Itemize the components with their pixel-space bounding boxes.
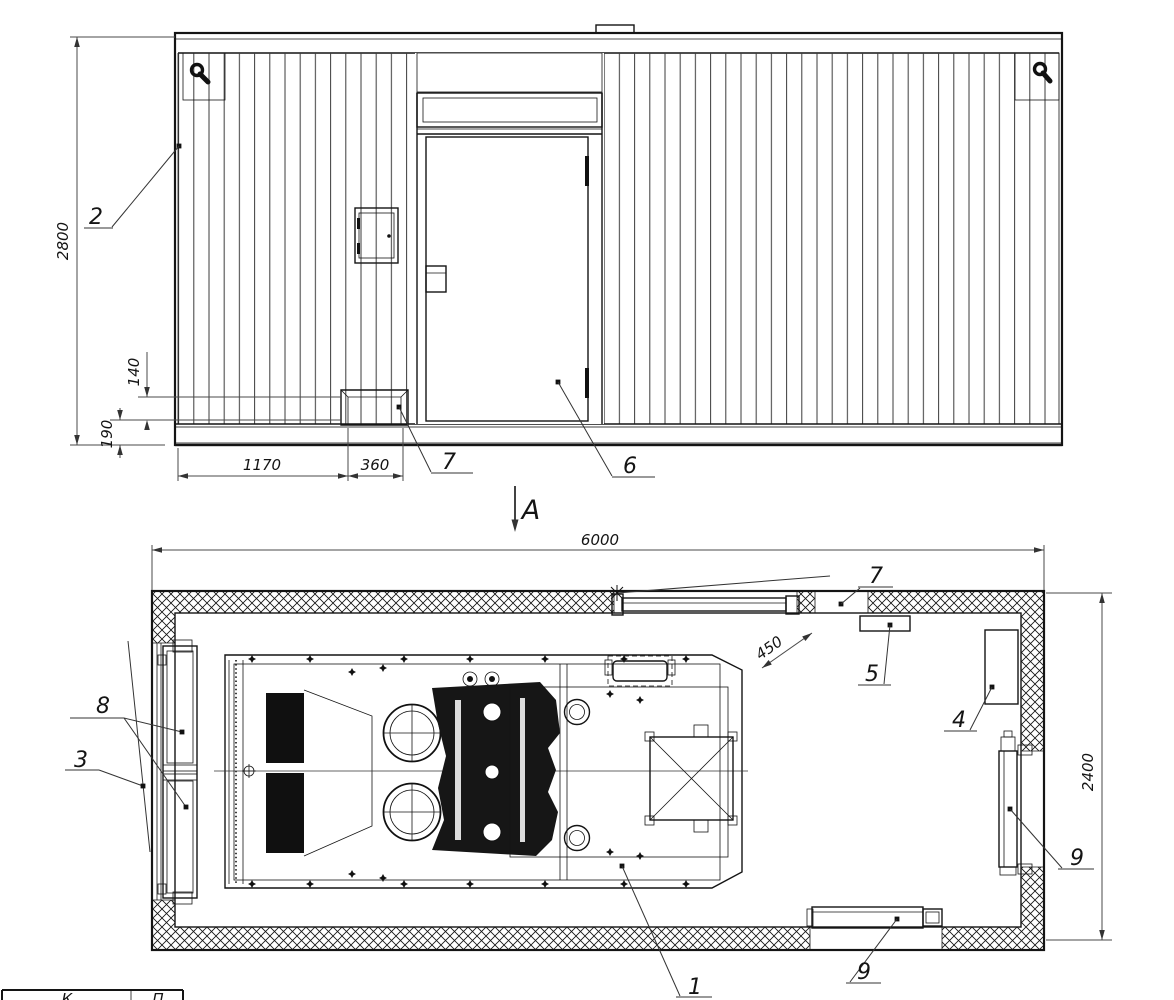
louver-assembly (128, 640, 197, 904)
air-filter-lower (383, 783, 441, 841)
door-hinge-bottom (585, 368, 589, 398)
section-marker-A: А (512, 486, 541, 532)
dim-2400: 2400 (1079, 753, 1097, 791)
radiator-core-upper (266, 693, 304, 763)
container-drawing: 2800 140 190 1170 360 (0, 0, 1174, 1000)
callout-7-elevation: 7 (442, 450, 456, 475)
air-filter-upper (383, 704, 441, 762)
elevation-view: 2800 140 190 1170 360 (54, 25, 1062, 481)
silencer (605, 656, 675, 686)
roof-vent (596, 25, 634, 33)
dim-140: 140 (125, 358, 143, 387)
callout-8: 8 (96, 694, 110, 719)
genset-skid (214, 655, 748, 888)
plan-walls (152, 591, 1044, 950)
wall-siding (178, 53, 1059, 424)
radiator-core-lower (266, 773, 304, 853)
callout-4: 4 (952, 708, 966, 733)
control-box[interactable] (860, 616, 910, 631)
wall-cabinet[interactable] (985, 630, 1018, 704)
callout-3: 3 (74, 748, 88, 773)
callout-6: 6 (623, 454, 637, 479)
callout-1: 1 (688, 975, 702, 1000)
drawing-sheet: 2800 140 190 1170 360 (0, 0, 1174, 1000)
dim-190: 190 (98, 420, 116, 449)
dim-450: 450 (752, 632, 786, 663)
radiator-side (999, 731, 1032, 875)
dim-2800: 2800 (54, 222, 72, 260)
section-letter: А (520, 495, 540, 526)
centerline-symbol (242, 764, 256, 778)
plan-view: 6000 2400 450 7 5 4 (65, 531, 1112, 1000)
radiator-rear (807, 907, 942, 928)
callout-2: 2 (89, 205, 103, 230)
door-assembly (415, 53, 604, 424)
callout-7-plan: 7 (869, 564, 883, 589)
title-block-col1: К (62, 990, 74, 1000)
dim-1170: 1170 (243, 456, 281, 474)
generator-box (645, 725, 737, 832)
title-block-fragment: К П (2, 990, 183, 1000)
title-block-col2: П (152, 990, 163, 1000)
callout-9-side: 9 (1070, 846, 1084, 871)
door-hinge-top (585, 156, 589, 186)
engine-block (432, 682, 560, 856)
dim-360: 360 (361, 456, 390, 474)
callout-5: 5 (865, 662, 879, 687)
callout-9-rear: 9 (857, 960, 871, 985)
dim-6000: 6000 (581, 531, 619, 549)
